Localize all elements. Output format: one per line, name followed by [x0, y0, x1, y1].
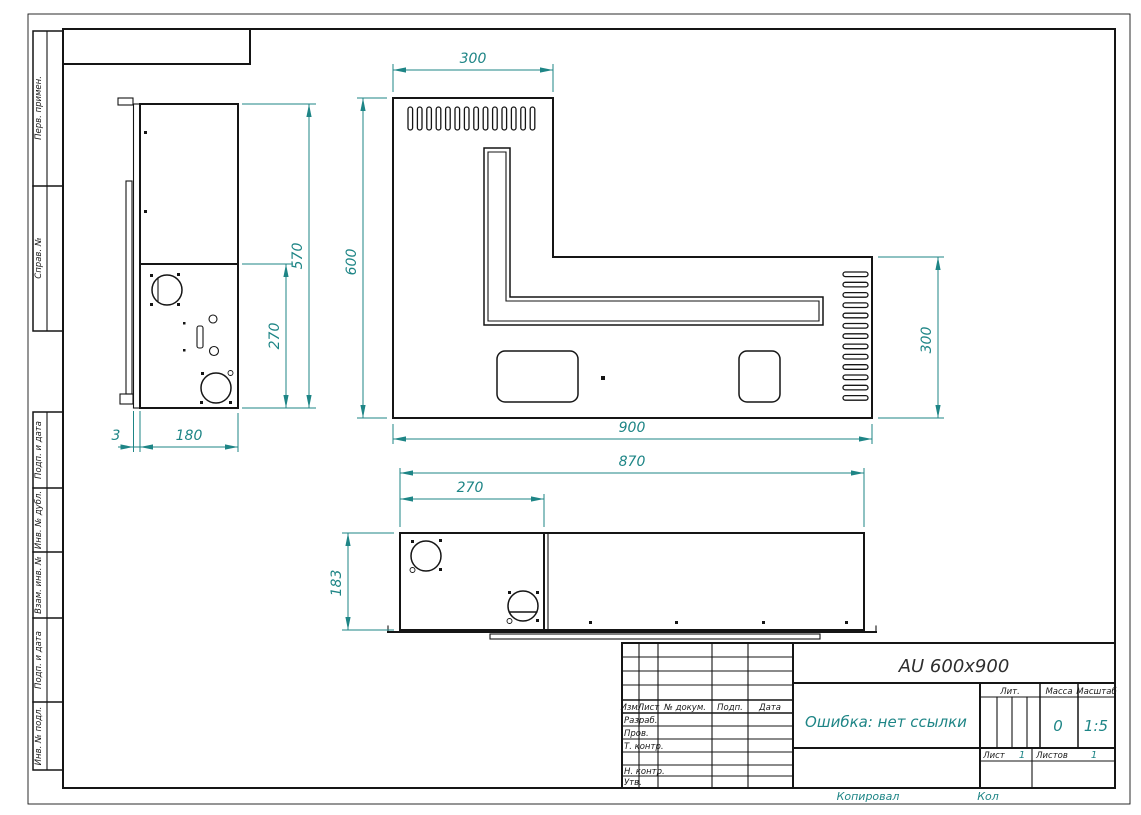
listov-value: 1: [1091, 750, 1097, 761]
dim-600-left: 600: [344, 249, 360, 276]
masshtab-value: 1:5: [1084, 717, 1108, 735]
row-tkontr: Т. контр.: [624, 742, 664, 752]
side-slot: [197, 326, 203, 348]
dim-183: 183: [329, 570, 345, 597]
list-listov-row: Лист 1 Листов 1: [980, 748, 1115, 788]
list-value: 1: [1019, 750, 1025, 761]
plan-l-channel: [484, 148, 823, 325]
dim-300-right: 300: [919, 327, 935, 354]
row-prov: Пров.: [624, 729, 649, 739]
col-data: Дата: [758, 703, 781, 713]
massa-value: 0: [1053, 717, 1063, 735]
side-bottom-tab: [120, 394, 133, 404]
engineering-drawing: Перв. примен. Справ. № Подп. и дата Инв.…: [0, 0, 1141, 815]
plan-top-louvers: [408, 107, 535, 130]
document-note: Ошибка: нет ссылки: [805, 713, 967, 731]
col-list: Лист: [637, 703, 661, 713]
document-title: AU 600x900: [898, 656, 1010, 677]
front-bottom-flange: [388, 626, 876, 639]
dim-270-front: 270: [457, 480, 484, 496]
massa-label: Масса: [1045, 687, 1072, 697]
dim-3: 3: [112, 428, 121, 444]
label-podp-i-data-2: Подп. и дата: [34, 631, 44, 689]
view-plan-l-panel: 300 600 300 900: [344, 51, 944, 444]
front-fan-cutout-right: [507, 591, 539, 624]
side-fan-cutout-lower: [200, 371, 233, 405]
dim-570: 570: [290, 243, 306, 270]
label-podp-i-data-1: Подп. и дата: [34, 421, 44, 479]
list-label: Лист: [982, 751, 1006, 761]
kopiroval-label: Копировал: [837, 790, 900, 803]
drawing-sheet: Перв. примен. Справ. № Подп. и дата Инв.…: [0, 0, 1141, 815]
side-hole-2: [210, 347, 219, 356]
row-nkontr: Н. контр.: [624, 767, 665, 777]
front-outline: [400, 533, 864, 630]
lit-label: Лит.: [999, 687, 1020, 697]
left-margin-stamps: Перв. примен. Справ. № Подп. и дата Инв.…: [33, 31, 63, 770]
dim-270-side: 270: [267, 323, 283, 350]
dim-870: 870: [619, 454, 646, 470]
below-frame-labels: Копировал Кол: [837, 790, 999, 803]
front-fan-cutout-left: [410, 539, 442, 573]
label-vzam-inv-no: Взам. инв. №: [34, 556, 44, 614]
row-utv: Утв.: [624, 778, 642, 788]
plan-hole-dot: [601, 376, 605, 380]
row-razrab: Разраб.: [624, 716, 657, 726]
label-inv-no-podl: Инв. № подл.: [34, 707, 44, 766]
top-left-box: [63, 29, 250, 64]
kol-label: Кол: [977, 790, 999, 803]
col-docnum: № докум.: [663, 703, 706, 713]
side-front-strip: [126, 181, 132, 394]
plan-cutout-small: [739, 351, 780, 402]
plan-right-louvers: [843, 272, 868, 400]
side-outline: [140, 104, 238, 408]
label-inv-no-dubl: Инв. № дубл.: [34, 491, 44, 549]
dim-180: 180: [176, 428, 203, 444]
side-hole-1: [209, 315, 217, 323]
label-perv-primen: Перв. примен.: [34, 76, 44, 140]
dim-300-top: 300: [460, 51, 487, 67]
label-sprav-no: Справ. №: [34, 237, 44, 279]
plan-cutout-large: [497, 351, 578, 402]
view-side: 570 270 3 180: [112, 98, 316, 452]
view-front: 870 270 183: [329, 454, 876, 639]
side-dimensions: 570 270 3 180: [112, 104, 316, 452]
front-dimensions: 870 270 183: [329, 454, 864, 630]
dim-900-bottom: 900: [619, 420, 646, 436]
listov-label: Листов: [1035, 751, 1068, 761]
plan-outline: [393, 98, 872, 418]
side-top-tab: [118, 98, 133, 105]
side-fan-cutout-upper: [150, 273, 182, 306]
col-podp: Подп.: [717, 703, 743, 713]
title-block: Изм. Лист № докум. Подп. Дата Разраб. Пр…: [621, 643, 1117, 788]
masshtab-label: Масштаб: [1076, 687, 1116, 697]
lit-massa-masshtab: Лит. Масса Масштаб 0 1:5: [980, 683, 1117, 748]
